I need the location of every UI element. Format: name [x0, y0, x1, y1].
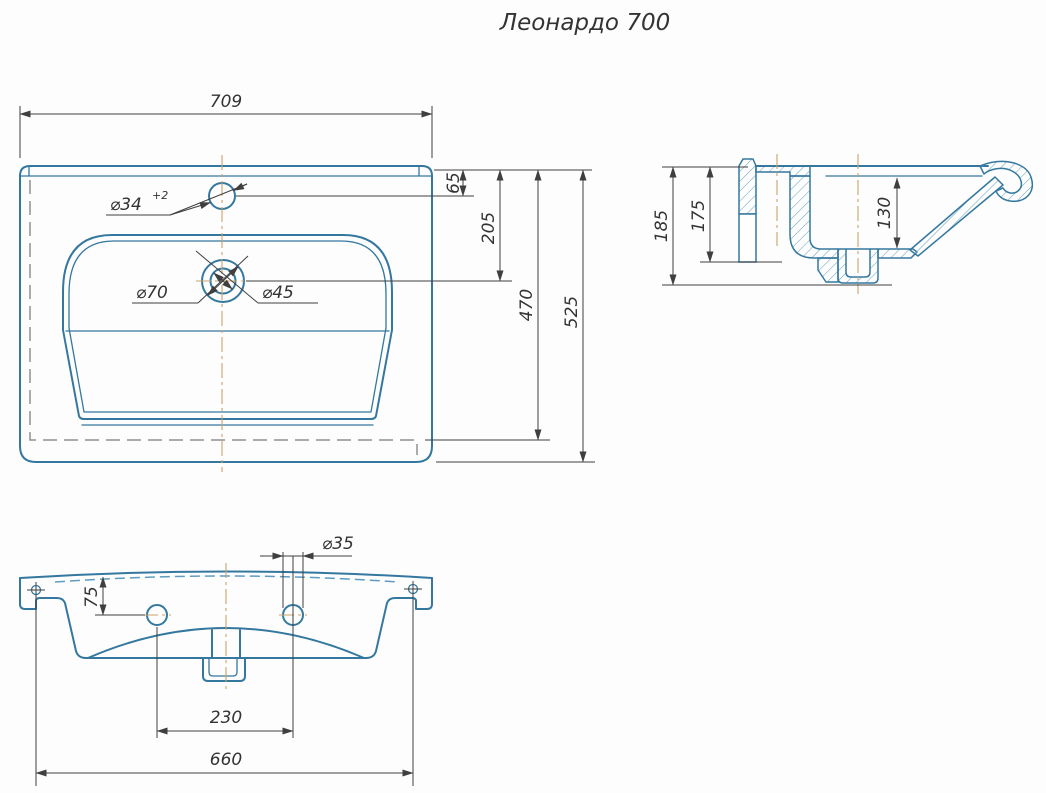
dim-faucet-offset-value: 65	[444, 172, 464, 194]
faucet-hole-diameter-label: ⌀34	[110, 195, 142, 215]
dim-total-height: 185	[652, 167, 892, 285]
dim-drain-offset: 205	[246, 170, 512, 281]
dim-top-width: 709	[20, 92, 432, 158]
bowl-back-wall	[790, 176, 838, 258]
overflow-hole-diameter-label: ⌀35	[322, 534, 354, 554]
dim-depth-value: 525	[562, 296, 582, 328]
dim-mounting-spacing-value: 660	[210, 750, 242, 770]
callout-drain-hole: ⌀45	[196, 251, 318, 303]
dim-body-height: 175	[689, 167, 782, 262]
top-view-outline	[20, 166, 432, 462]
dim-total-height-value: 185	[652, 210, 672, 242]
dim-body-height-value: 175	[689, 200, 709, 232]
deck-band	[756, 166, 810, 176]
hidden-cabinet-outline	[30, 180, 417, 455]
drawing-canvas: Леонардо 700	[0, 0, 1046, 793]
overflow-holes	[143, 605, 307, 625]
sink-technical-drawing: Леонардо 700	[0, 0, 1046, 793]
dim-depth: 525	[436, 170, 595, 462]
dim-overflow-spacing: 230	[157, 556, 293, 738]
drain-recess-diameter-label: ⌀70	[136, 283, 168, 303]
dim-overflow-offset-value: 75	[82, 586, 102, 608]
dim-faucet-offset: 65	[236, 170, 592, 196]
dim-basin-depth: 130	[875, 178, 897, 248]
basin-outline	[63, 235, 392, 425]
drain-support	[818, 258, 838, 282]
drain-hole-diameter-label: ⌀45	[262, 283, 294, 303]
back-wall-lower	[739, 214, 756, 262]
callout-faucet-hole: ⌀34 +2	[106, 184, 247, 215]
drawing-title: Леонардо 700	[499, 10, 670, 36]
dim-overflow-spacing-value: 230	[210, 708, 242, 728]
front-view: ⌀35 75 230 660	[20, 534, 432, 786]
dim-inner-depth: 470	[425, 170, 550, 440]
dim-basin-depth-value: 130	[875, 197, 895, 229]
side-view: 185 175 130	[652, 154, 1032, 294]
dim-inner-depth-value: 470	[517, 289, 537, 321]
dim-drain-offset-value: 205	[479, 212, 499, 244]
top-view: 709 65 205 470 525	[20, 92, 595, 472]
dim-mounting-spacing: 660	[36, 581, 413, 786]
dim-overflow-offset: 75	[82, 577, 145, 615]
bowl-front-slope	[910, 177, 1003, 256]
dim-top-width-value: 709	[210, 92, 242, 112]
faucet-hole-tolerance-label: +2	[152, 189, 168, 202]
